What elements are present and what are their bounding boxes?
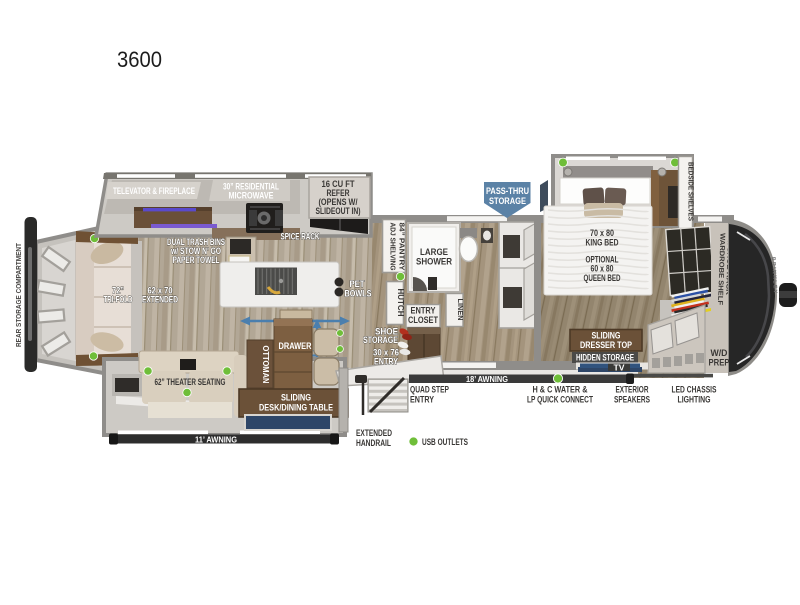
svg-text:SHOWER: SHOWER bbox=[416, 257, 452, 267]
svg-text:PAPER TOWEL: PAPER TOWEL bbox=[173, 255, 220, 265]
svg-text:BEDSIDE SHELVES: BEDSIDE SHELVES bbox=[687, 162, 696, 221]
svg-text:ENTRY: ENTRY bbox=[411, 306, 436, 316]
svg-text:LINEN: LINEN bbox=[456, 299, 465, 321]
svg-text:EXTENDED: EXTENDED bbox=[356, 428, 392, 438]
svg-text:HIDDEN STORAGE: HIDDEN STORAGE bbox=[576, 353, 634, 363]
svg-text:HANDRAIL: HANDRAIL bbox=[356, 438, 391, 448]
svg-text:ENTRY: ENTRY bbox=[374, 357, 398, 367]
svg-text:KING BED: KING BED bbox=[586, 238, 619, 248]
svg-text:18’ AWNING: 18’ AWNING bbox=[466, 374, 508, 384]
svg-text:PET: PET bbox=[350, 279, 365, 289]
svg-text:W/D: W/D bbox=[711, 348, 728, 358]
svg-text:SPICE RACK: SPICE RACK bbox=[281, 232, 320, 242]
svg-text:OTTOMAN: OTTOMAN bbox=[261, 346, 271, 384]
svg-text:PREP: PREP bbox=[709, 358, 730, 368]
svg-text:84” PANTRY: 84” PANTRY bbox=[398, 223, 407, 271]
svg-text:70 x 80: 70 x 80 bbox=[590, 228, 614, 238]
svg-text:TV: TV bbox=[614, 363, 626, 372]
svg-text:3600: 3600 bbox=[117, 47, 162, 72]
svg-text:SLIDING: SLIDING bbox=[592, 331, 621, 341]
svg-text:SPEAKERS: SPEAKERS bbox=[614, 395, 650, 405]
svg-text:EXTENDED: EXTENDED bbox=[142, 295, 178, 305]
svg-text:CLOSET: CLOSET bbox=[408, 315, 439, 325]
svg-text:SLIDEOUT IN): SLIDEOUT IN) bbox=[316, 206, 361, 216]
svg-text:REAR STORAGE COMPARTMENT: REAR STORAGE COMPARTMENT bbox=[14, 242, 23, 347]
svg-text:LIGHTING: LIGHTING bbox=[678, 395, 711, 405]
svg-text:TRI-FOLD: TRI-FOLD bbox=[104, 295, 133, 305]
svg-text:DRAWER: DRAWER bbox=[279, 341, 313, 351]
svg-text:MICROWAVE: MICROWAVE bbox=[229, 191, 274, 201]
svg-text:QUEEN BED: QUEEN BED bbox=[584, 273, 621, 283]
svg-text:BOWLS: BOWLS bbox=[345, 289, 372, 299]
svg-text:60 x 80: 60 x 80 bbox=[591, 264, 614, 274]
svg-text:LED CHASSIS: LED CHASSIS bbox=[672, 385, 717, 395]
svg-text:HUTCH: HUTCH bbox=[396, 289, 405, 317]
svg-text:QUAD STEP: QUAD STEP bbox=[410, 385, 449, 395]
svg-text:LARGE: LARGE bbox=[420, 247, 448, 257]
svg-text:SLIDING: SLIDING bbox=[281, 393, 311, 403]
svg-text:LP QUICK CONNECT: LP QUICK CONNECT bbox=[527, 395, 593, 405]
svg-text:STORAGE: STORAGE bbox=[363, 335, 398, 345]
svg-text:PASS-THRU: PASS-THRU bbox=[486, 186, 529, 196]
svg-text:TELEVATOR & FIREPLACE: TELEVATOR & FIREPLACE bbox=[113, 186, 195, 196]
svg-text:11’ AWNING: 11’ AWNING bbox=[195, 435, 237, 445]
svg-text:USB OUTLETS: USB OUTLETS bbox=[422, 437, 468, 447]
svg-text:STORAGE: STORAGE bbox=[489, 196, 526, 206]
svg-text:62” THEATER SEATING: 62” THEATER SEATING bbox=[155, 377, 226, 387]
svg-text:ENTRY: ENTRY bbox=[410, 395, 434, 405]
svg-text:ADJ SHELVING: ADJ SHELVING bbox=[389, 223, 398, 271]
svg-text:DESK/DINING TABLE: DESK/DINING TABLE bbox=[259, 403, 333, 413]
svg-text:EXTERIOR: EXTERIOR bbox=[616, 385, 649, 395]
svg-text:H & C WATER &: H & C WATER & bbox=[533, 385, 588, 395]
svg-text:DRESSER TOP: DRESSER TOP bbox=[580, 340, 632, 350]
